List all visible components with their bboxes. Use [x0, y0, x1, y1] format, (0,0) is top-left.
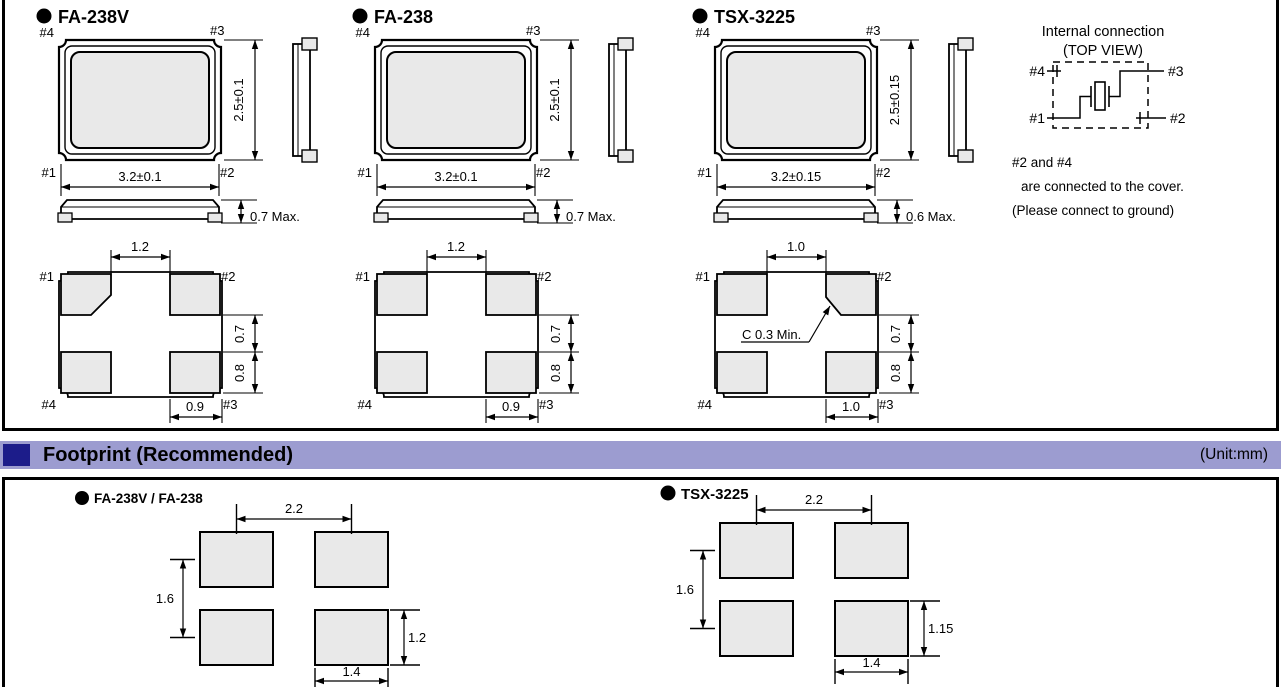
pin-label: #2	[536, 165, 550, 180]
pin-label: #4	[1029, 63, 1045, 79]
arrowhead-icon	[568, 151, 574, 160]
footprint-pad	[835, 523, 908, 578]
arrowhead-icon	[568, 315, 574, 324]
arrowhead-icon	[908, 315, 914, 324]
width-dim-label: 3.2±0.15	[771, 169, 822, 184]
pin-label: #2	[220, 165, 234, 180]
arrowhead-icon	[908, 343, 914, 352]
pad-3	[826, 352, 876, 393]
package-drawing-tsx-3225: TSX-3225#4#3#1#22.5±0.153.2±0.150.6 Max.…	[660, 0, 992, 430]
bullet-icon	[661, 486, 676, 501]
profile-pad	[714, 213, 728, 222]
arrowhead-icon	[921, 647, 927, 656]
pad-3	[486, 352, 536, 393]
pin-label: #2	[877, 269, 891, 284]
footprint-pad	[835, 601, 908, 656]
pad-size-dim-label: 1.4	[862, 655, 880, 670]
section-header-footprint: Footprint (Recommended) (Unit:mm)	[0, 441, 1281, 469]
arrowhead-icon	[568, 40, 574, 49]
pad-dim-label: 1.0	[842, 399, 860, 414]
profile-view-body	[717, 200, 875, 219]
arrowhead-icon	[161, 254, 170, 260]
width-dim-label: 3.2±0.1	[434, 169, 477, 184]
pin-label: #3	[539, 397, 553, 412]
footprint-pad	[200, 532, 273, 587]
pad-4	[61, 352, 111, 393]
arrowhead-icon	[757, 507, 766, 513]
arrowhead-icon	[477, 254, 486, 260]
side-view-pad	[618, 38, 633, 50]
bullet-icon	[37, 9, 52, 24]
pad-size-dim-label: 1.4	[342, 664, 360, 679]
footprint-pad	[720, 523, 793, 578]
arrowhead-icon	[700, 551, 706, 560]
unit-label: (Unit:mm)	[1200, 441, 1268, 469]
pitch-dim-label: 1.6	[156, 591, 174, 606]
package-title: FA-238	[374, 7, 433, 27]
width-dim-label: 3.2±0.1	[118, 169, 161, 184]
pitch-dim-label: 2.2	[805, 492, 823, 507]
pad-dim-label: 0.7	[232, 325, 247, 343]
pin-label: #4	[356, 25, 370, 40]
pin-label: #1	[356, 269, 370, 284]
arrowhead-icon	[180, 629, 186, 638]
arrowhead-icon	[908, 384, 914, 393]
height-dim-label: 2.5±0.15	[887, 75, 902, 126]
arrowhead-icon	[343, 516, 352, 522]
pin3-trace	[1115, 71, 1164, 97]
arrowhead-icon	[717, 184, 726, 190]
pad-dim-label: 0.9	[186, 399, 204, 414]
pin-label: #1	[358, 165, 372, 180]
pin-label: #1	[1029, 110, 1045, 126]
arrowhead-icon	[315, 678, 324, 684]
pin-label: #4	[40, 25, 54, 40]
pad-gap-dim-label: 1.0	[787, 239, 805, 254]
pin-label: #3	[1168, 63, 1184, 79]
arrowhead-icon	[213, 414, 222, 420]
footprint-title: TSX-3225	[681, 486, 749, 503]
pin-label: #2	[537, 269, 551, 284]
pad-dim-label: 0.8	[888, 364, 903, 382]
arrowhead-icon	[252, 343, 258, 352]
pad-2	[486, 274, 536, 315]
package-lid	[71, 52, 209, 148]
side-view-body	[949, 44, 966, 156]
arrowhead-icon	[908, 40, 914, 49]
footprint-pad	[315, 532, 388, 587]
pad-dim-label: 0.7	[548, 325, 563, 343]
profile-pad	[58, 213, 72, 222]
arrowhead-icon	[817, 254, 826, 260]
pin-label: #2	[876, 165, 890, 180]
arrowhead-icon	[529, 414, 538, 420]
arrowhead-icon	[401, 656, 407, 665]
arrowhead-icon	[252, 352, 258, 361]
arrowhead-icon	[379, 678, 388, 684]
arrowhead-icon	[568, 352, 574, 361]
datasheet-page: FA-238V#4#3#1#22.5±0.13.2±0.10.7 Max.1.2…	[0, 0, 1281, 687]
pad-dim-label: 0.8	[548, 364, 563, 382]
height-dim-label: 2.5±0.1	[231, 78, 246, 121]
section-bullet-square	[3, 444, 30, 466]
pad-1	[377, 274, 427, 315]
package-drawing-fa-238v: FA-238V#4#3#1#22.5±0.13.2±0.10.7 Max.1.2…	[4, 0, 336, 430]
internal-connection-diagram: #4#3#1#2	[1003, 46, 1281, 140]
arrowhead-icon	[401, 610, 407, 619]
pin-label: #2	[1170, 110, 1186, 126]
footprint-drawing-tsx-3225: TSX-32252.21.61.151.4	[640, 479, 1280, 687]
bullet-icon	[75, 491, 89, 505]
pin-label: #2	[221, 269, 235, 284]
pin-label: #1	[696, 269, 710, 284]
package-title: FA-238V	[58, 7, 129, 27]
arrowhead-icon	[61, 184, 70, 190]
arrowhead-icon	[180, 560, 186, 569]
arrowhead-icon	[568, 343, 574, 352]
arrowhead-icon	[921, 601, 927, 610]
side-view-body	[293, 44, 310, 156]
profile-view-body	[61, 200, 219, 219]
pad-gap-dim-label: 1.2	[447, 239, 465, 254]
arrowhead-icon	[170, 414, 179, 420]
arrowhead-icon	[252, 40, 258, 49]
pin-label: #3	[866, 23, 880, 38]
pin-label: #4	[696, 25, 710, 40]
section-title: Footprint (Recommended)	[43, 441, 293, 469]
pin-label: #4	[358, 397, 372, 412]
arrowhead-icon	[486, 414, 495, 420]
pin-label: #3	[210, 23, 224, 38]
pad-dim-label: 0.7	[888, 325, 903, 343]
arrowhead-icon	[377, 184, 386, 190]
pad-4	[377, 352, 427, 393]
arrowhead-icon	[237, 516, 246, 522]
pin-label: #4	[698, 397, 712, 412]
profile-view-body	[377, 200, 535, 219]
note-line3: (Please connect to ground)	[1012, 199, 1274, 223]
arrowhead-icon	[863, 507, 872, 513]
internal-connection-title-line1: Internal connection	[1003, 23, 1203, 42]
pad-4	[717, 352, 767, 393]
note-line1: #2 and #4	[1012, 151, 1274, 175]
pad-size-dim-label: 1.15	[928, 621, 953, 636]
arrowhead-icon	[894, 214, 900, 223]
package-lid	[387, 52, 525, 148]
pitch-dim-label: 2.2	[285, 501, 303, 516]
bullet-icon	[353, 9, 368, 24]
arrowhead-icon	[866, 184, 875, 190]
arrowhead-icon	[767, 254, 776, 260]
profile-pad	[374, 213, 388, 222]
crystal-symbol	[1095, 82, 1105, 110]
footprint-drawing-fa-238v-fa-238: FA-238V / FA-2382.21.61.21.4	[4, 479, 636, 687]
arrowhead-icon	[210, 184, 219, 190]
pad-dim-label: 0.9	[502, 399, 520, 414]
height-dim-label: 2.5±0.1	[547, 78, 562, 121]
pad-1	[717, 274, 767, 315]
arrowhead-icon	[554, 200, 560, 209]
arrowhead-icon	[238, 214, 244, 223]
footprint-title: FA-238V / FA-238	[94, 491, 203, 506]
pad-dim-label: 0.8	[232, 364, 247, 382]
arrowhead-icon	[908, 151, 914, 160]
arrowhead-icon	[568, 384, 574, 393]
arrowhead-icon	[700, 620, 706, 629]
pin-label: #1	[40, 269, 54, 284]
side-view-pad	[302, 38, 317, 50]
arrowhead-icon	[908, 352, 914, 361]
pad-gap-dim-label: 1.2	[131, 239, 149, 254]
arrowhead-icon	[869, 414, 878, 420]
package-drawing-fa-238: FA-238#4#3#1#22.5±0.13.2±0.10.7 Max.1.20…	[320, 0, 652, 430]
arrowhead-icon	[252, 384, 258, 393]
arrowhead-icon	[111, 254, 120, 260]
footprint-pad	[315, 610, 388, 665]
arrowhead-icon	[899, 669, 908, 675]
package-title: TSX-3225	[714, 7, 795, 27]
pin-label: #3	[879, 397, 893, 412]
height-max-label: 0.7 Max.	[566, 209, 616, 224]
height-max-label: 0.7 Max.	[250, 209, 300, 224]
pin-label: #1	[42, 165, 56, 180]
arrowhead-icon	[894, 200, 900, 209]
arrowhead-icon	[238, 200, 244, 209]
pad-3	[170, 352, 220, 393]
footprint-pad	[200, 610, 273, 665]
arrowhead-icon	[554, 214, 560, 223]
cover-ground-note: #2 and #4 are connected to the cover. (P…	[1012, 151, 1274, 223]
pin-label: #3	[526, 23, 540, 38]
arrowhead-icon	[526, 184, 535, 190]
pin-label: #4	[42, 397, 56, 412]
profile-pad	[524, 213, 538, 222]
pad-2	[170, 274, 220, 315]
pin-label: #1	[698, 165, 712, 180]
note-line2: are connected to the cover.	[1012, 175, 1274, 199]
side-view-body	[609, 44, 626, 156]
height-max-label: 0.6 Max.	[906, 209, 956, 224]
arrowhead-icon	[427, 254, 436, 260]
pad-size-dim-label: 1.2	[408, 630, 426, 645]
arrowhead-icon	[835, 669, 844, 675]
pin-label: #3	[223, 397, 237, 412]
side-view-pad	[958, 38, 973, 50]
footprint-pad	[720, 601, 793, 656]
bullet-icon	[693, 9, 708, 24]
chamfer-note-label: C 0.3 Min.	[742, 327, 801, 342]
arrowhead-icon	[826, 414, 835, 420]
side-view-pad	[302, 150, 317, 162]
profile-pad	[864, 213, 878, 222]
pitch-dim-label: 1.6	[676, 582, 694, 597]
arrowhead-icon	[252, 151, 258, 160]
side-view-pad	[958, 150, 973, 162]
profile-pad	[208, 213, 222, 222]
package-lid	[727, 52, 865, 148]
arrowhead-icon	[252, 315, 258, 324]
side-view-pad	[618, 150, 633, 162]
